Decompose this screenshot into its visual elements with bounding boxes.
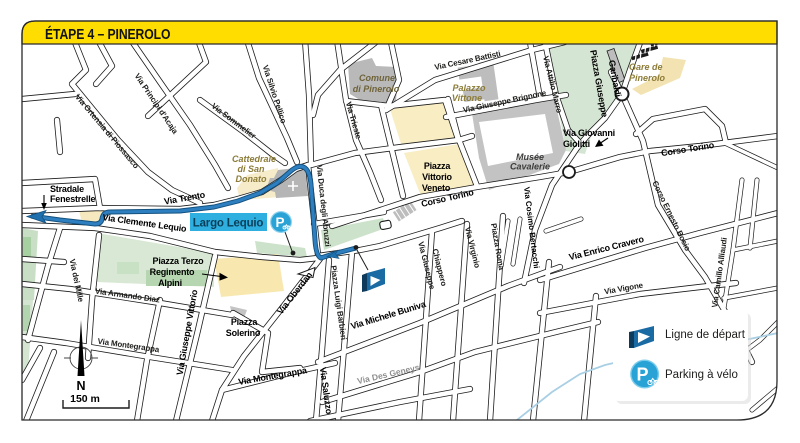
- svg-text:150 m: 150 m: [70, 393, 100, 405]
- svg-text:Regimento: Regimento: [150, 267, 195, 277]
- svg-text:Piazza: Piazza: [424, 161, 452, 171]
- svg-text:Cattedrale: Cattedrale: [232, 154, 276, 164]
- svg-text:Stradale: Stradale: [50, 184, 84, 194]
- svg-text:Comune: Comune: [359, 73, 395, 83]
- svg-text:Fenestrelle: Fenestrelle: [50, 194, 96, 204]
- svg-text:Musée: Musée: [516, 152, 544, 162]
- svg-text:Largo Lequio: Largo Lequio: [193, 218, 264, 230]
- svg-text:Piazza: Piazza: [231, 317, 259, 327]
- svg-text:Vittorio: Vittorio: [422, 172, 452, 182]
- svg-text:Giolitti: Giolitti: [563, 139, 590, 149]
- svg-text:di San: di San: [237, 164, 265, 174]
- svg-text:Parking à vélo: Parking à vélo: [665, 369, 738, 381]
- svg-text:Piazza Terzo: Piazza Terzo: [153, 256, 205, 266]
- svg-text:Gare de: Gare de: [629, 62, 663, 72]
- svg-text:Solerino: Solerino: [226, 328, 261, 338]
- svg-text:ÉTAPE 4 – PINEROLO: ÉTAPE 4 – PINEROLO: [45, 26, 170, 42]
- svg-text:Pinerolo: Pinerolo: [629, 73, 666, 83]
- svg-text:Palazzo: Palazzo: [452, 83, 486, 93]
- svg-text:Veneto: Veneto: [422, 183, 451, 193]
- svg-text:Alpini: Alpini: [158, 278, 182, 288]
- svg-text:Vittone: Vittone: [452, 93, 482, 103]
- svg-text:Via Giovanni: Via Giovanni: [563, 128, 615, 138]
- svg-text:Donato: Donato: [236, 174, 267, 184]
- svg-text:Cavalerie: Cavalerie: [510, 162, 550, 172]
- svg-text:di Pinerolo: di Pinerolo: [353, 84, 400, 94]
- svg-text:P: P: [636, 365, 648, 385]
- svg-text:Ligne de départ: Ligne de départ: [665, 329, 746, 341]
- svg-text:N: N: [76, 379, 85, 393]
